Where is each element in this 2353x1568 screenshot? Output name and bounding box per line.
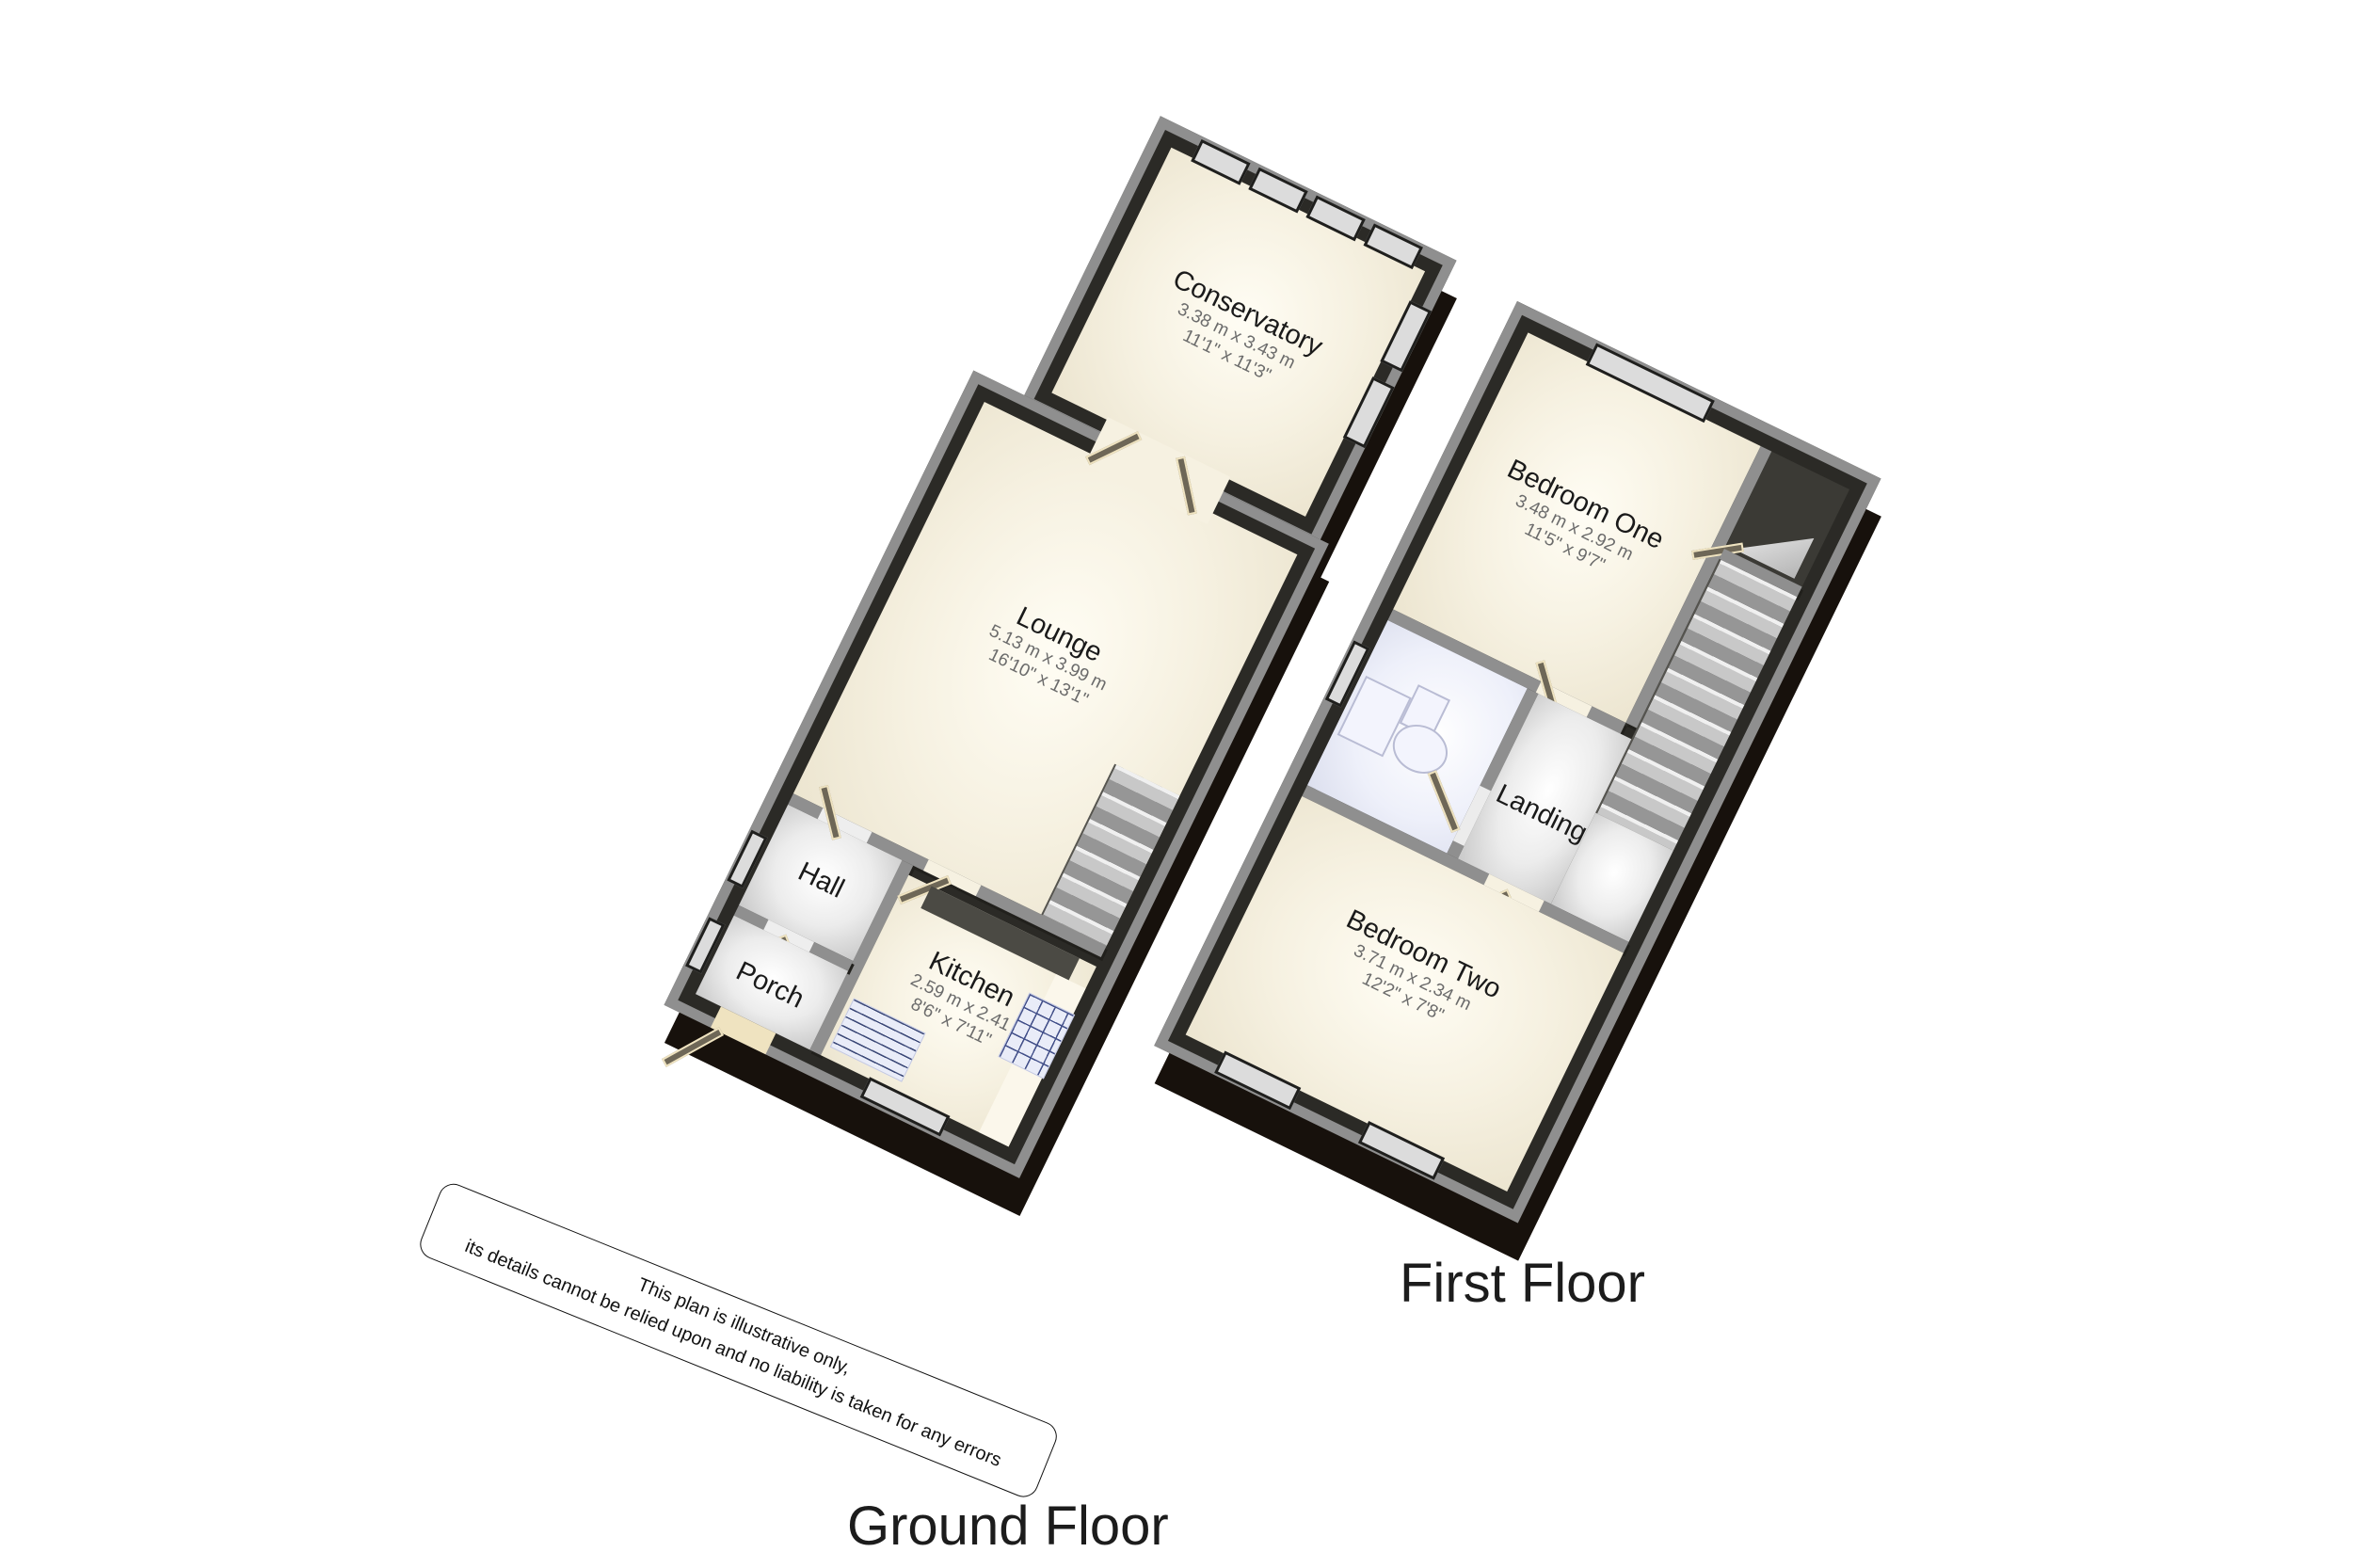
first-floor-caption: First Floor: [1400, 1252, 1645, 1315]
floorplan-scene: Conservatory 3.38 m x 3.43 m 11'1" x 11'…: [0, 0, 2353, 1568]
disclaimer-line2: its details cannot be relied upon and no…: [431, 1221, 1035, 1487]
front-door-leaf: [662, 1027, 724, 1067]
ground-floor-caption: Ground Floor: [847, 1495, 1169, 1558]
disclaimer-box: This plan is illustrative only, its deta…: [416, 1179, 1062, 1501]
disclaimer-line1: This plan is illustrative only,: [441, 1193, 1046, 1460]
